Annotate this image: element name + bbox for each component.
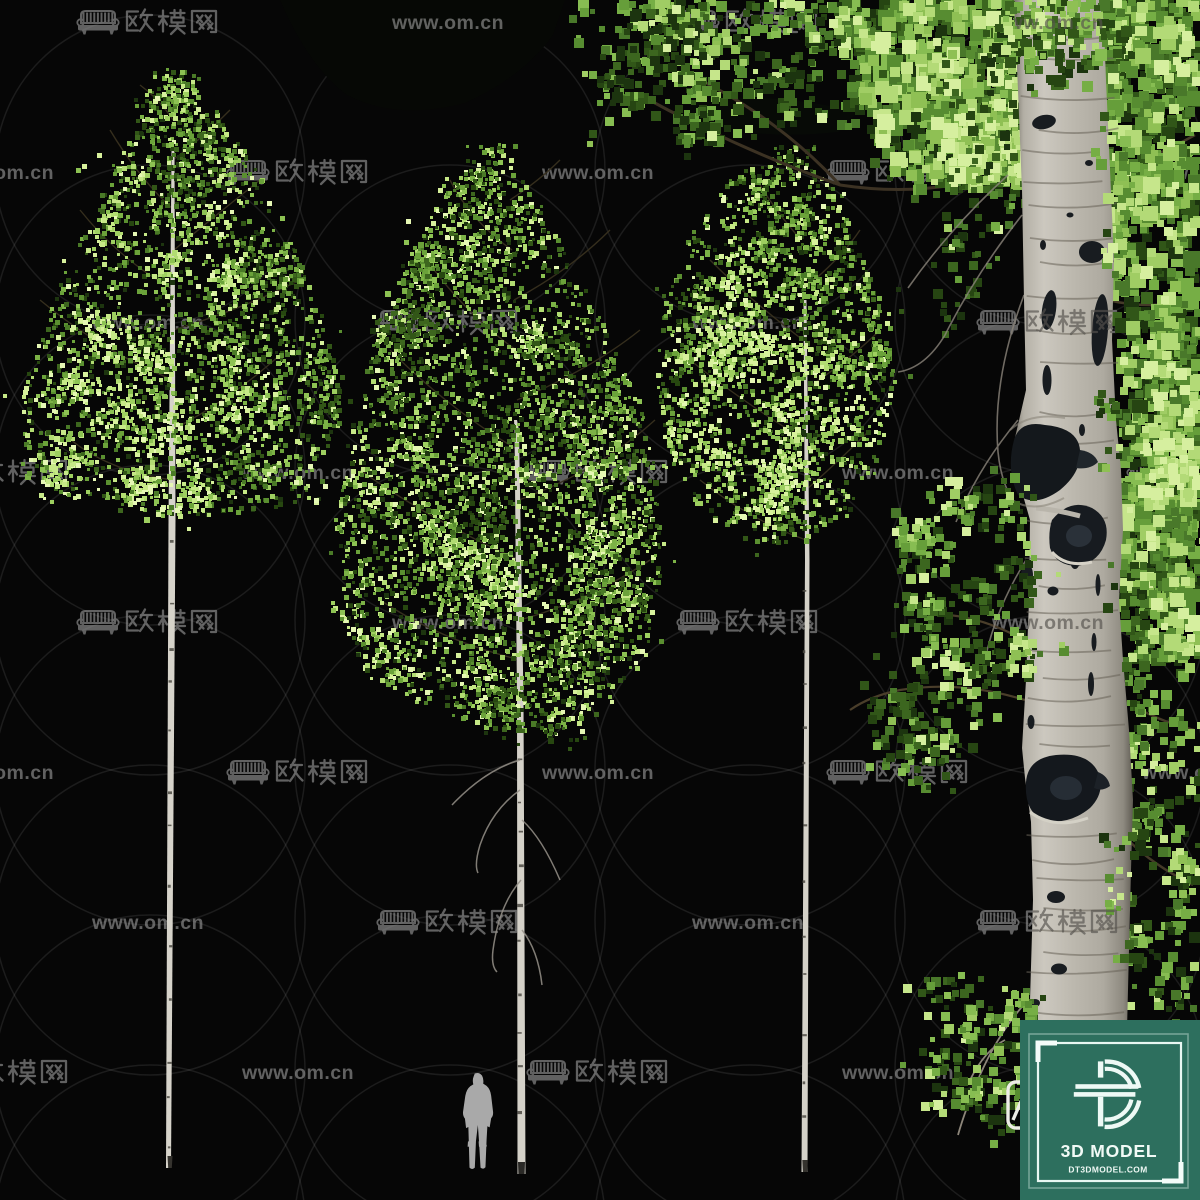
- svg-text:3D MODEL: 3D MODEL: [1061, 1141, 1158, 1161]
- svg-text:DT3DMODEL.COM: DT3DMODEL.COM: [1068, 1165, 1147, 1175]
